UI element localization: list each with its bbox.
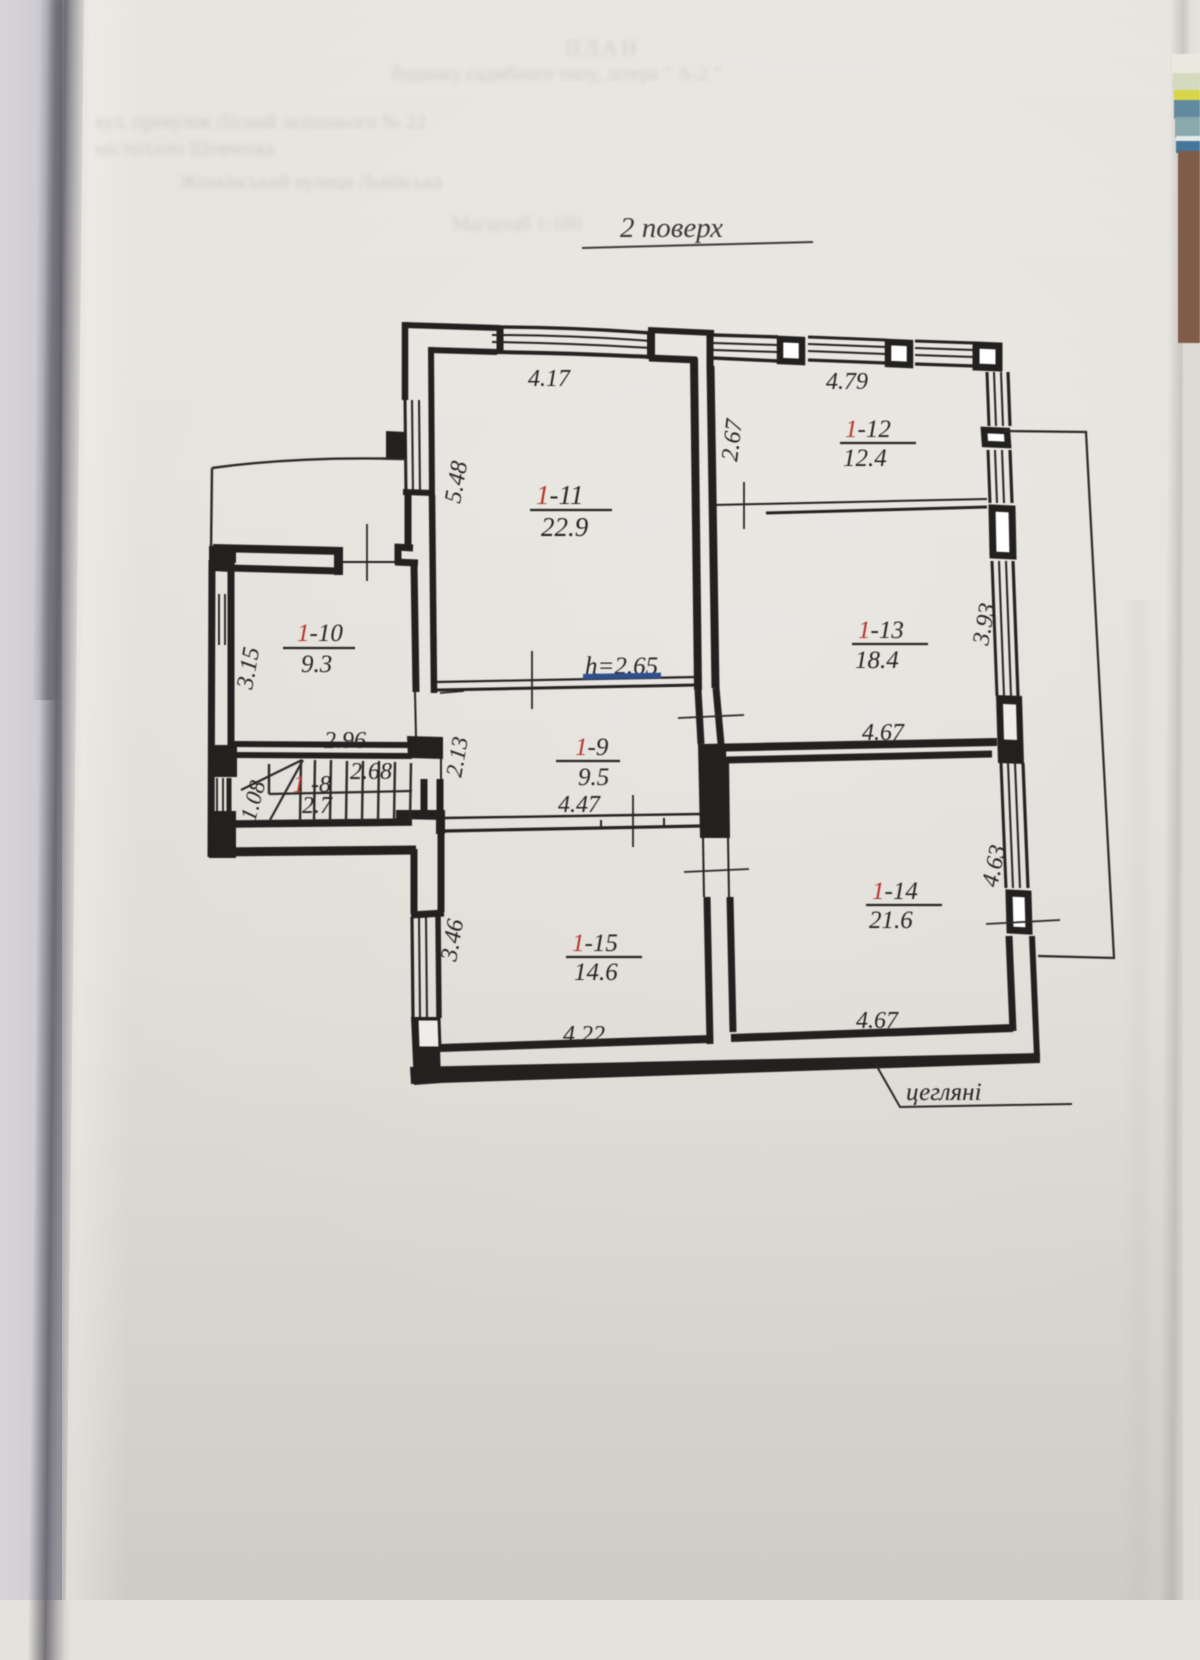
svg-text:4.67: 4.67 [862,720,905,746]
svg-text:вул. провулок Лісний зал: вул. провулок Лісний залішнього № 22 [95,111,426,133]
svg-text:місто/село Шевченка: місто/село Шевченка [95,138,275,160]
svg-text:4.79: 4.79 [826,369,868,395]
svg-text:21.6: 21.6 [869,907,913,934]
svg-text:9.5: 9.5 [578,764,609,791]
svg-text:2.67: 2.67 [717,417,748,463]
svg-text:1-14: 1-14 [872,878,918,905]
svg-text:5.48: 5.48 [440,459,473,505]
svg-text:9.3: 9.3 [301,651,332,678]
svg-text:3.46: 3.46 [436,917,469,964]
svg-text:будинку садибного типу, літ: будинку садибного типу, літера " А-2 " [392,63,721,85]
svg-text:1-11: 1-11 [536,480,584,510]
svg-text:ПЛАН: ПЛАН [565,36,641,60]
svg-text:1.08: 1.08 [236,777,271,823]
svg-text:4.22: 4.22 [563,1022,605,1048]
svg-text:2 поверх: 2 поверх [620,212,723,244]
svg-text:1-12: 1-12 [845,416,891,443]
svg-text:2.7: 2.7 [302,793,333,819]
svg-text:2.13: 2.13 [441,735,473,779]
svg-text:3.15: 3.15 [232,645,265,692]
svg-text:цегляні: цегляні [906,1079,982,1106]
svg-text:1-9: 1-9 [575,734,609,761]
svg-text:Масштаб 1:100: Масштаб 1:100 [452,213,582,235]
svg-text:22.9: 22.9 [541,512,589,542]
svg-text:Жовківський вулиця: Жовківський вулиця Львівська [180,171,442,193]
svg-text:18.4: 18.4 [855,647,899,674]
svg-text:1-13: 1-13 [858,617,904,644]
svg-text:12.4: 12.4 [843,445,887,472]
svg-text:14.6: 14.6 [574,959,618,986]
svg-text:2.68: 2.68 [350,759,392,785]
svg-text:4.17: 4.17 [528,366,571,392]
svg-text:4.67: 4.67 [856,1008,899,1034]
svg-text:4.47: 4.47 [558,792,601,818]
svg-text:1-15: 1-15 [572,930,618,957]
svg-text:2.96: 2.96 [324,728,366,754]
svg-text:1-10: 1-10 [297,620,343,647]
